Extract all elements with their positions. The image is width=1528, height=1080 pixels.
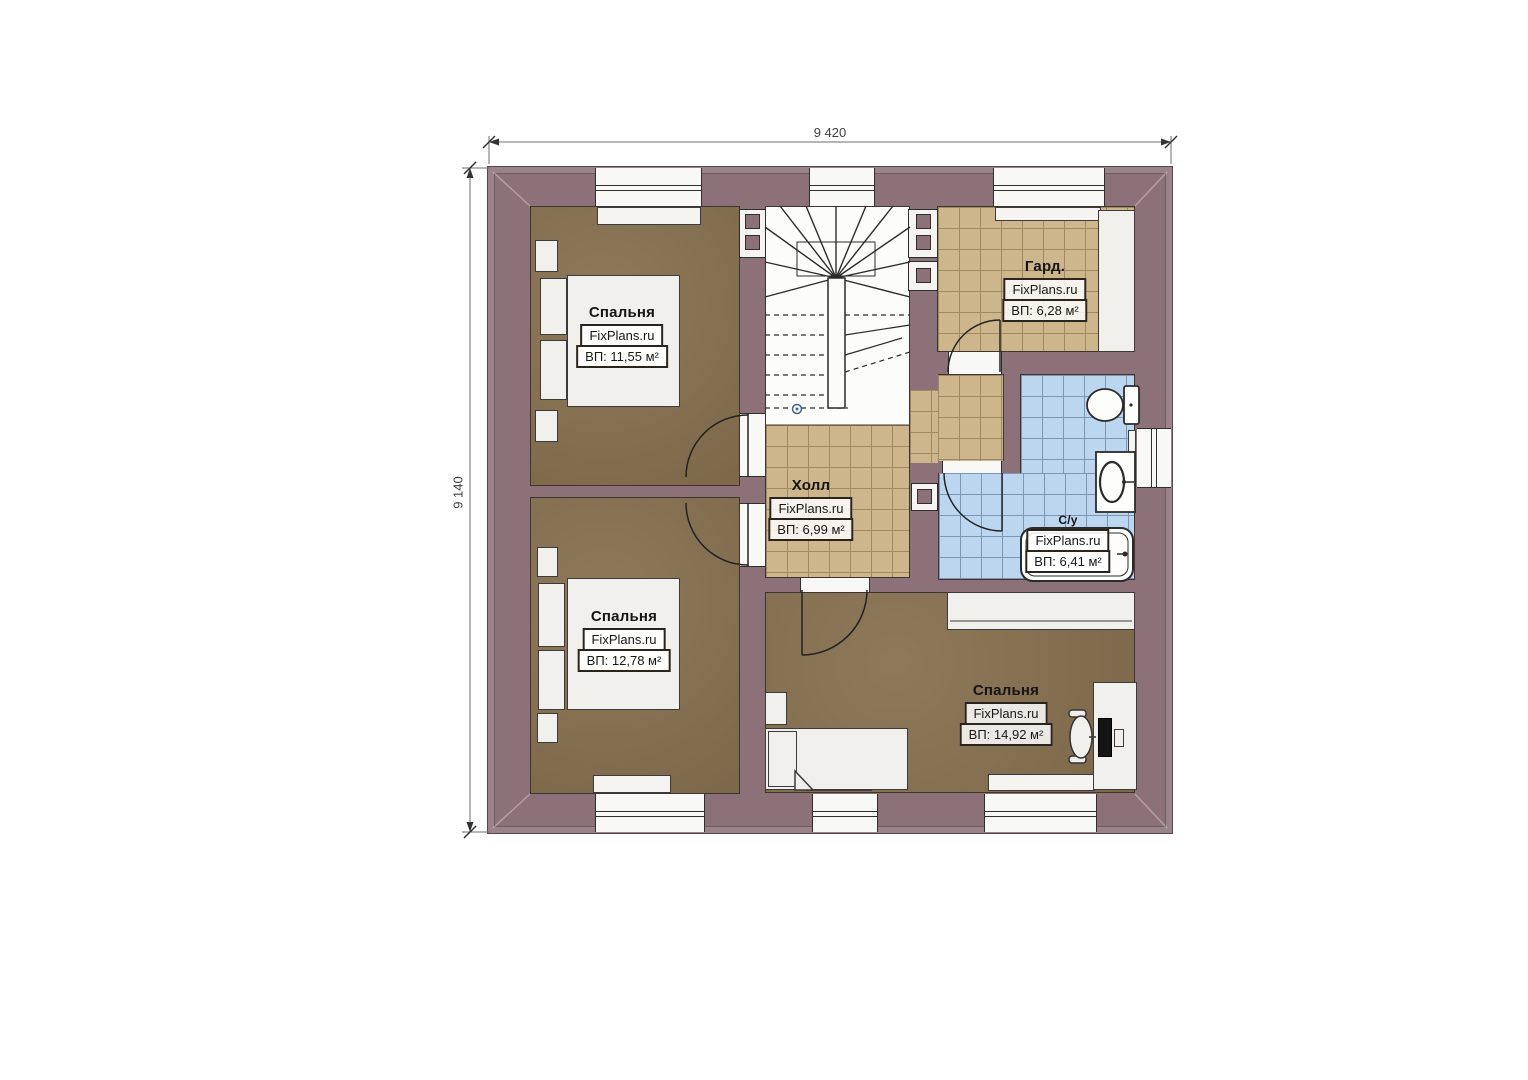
door-opening-bedroom-top-left xyxy=(740,413,765,477)
room-label-bedroom-bottom-left: Спальня FixPlans.ru ВП: 12,78 м² xyxy=(578,608,671,672)
dimension-height-label: 9 140 xyxy=(451,458,466,528)
window-top-left xyxy=(595,168,702,206)
hall-pillar-post xyxy=(911,483,938,511)
radiator-bedroom-bottom-right-2 xyxy=(988,774,1095,791)
closet xyxy=(1098,210,1135,352)
room-area-label: ВП: 12,78 м² xyxy=(578,649,671,672)
radiator-bedroom-top-left xyxy=(597,207,701,225)
radiator-wardrobe xyxy=(995,207,1101,221)
watermark-badge: FixPlans.ru xyxy=(769,497,852,520)
radiator-bedroom-bottom-left xyxy=(593,775,671,793)
wardrobe-shelf xyxy=(947,592,1135,630)
floor-plan-page: 9 420 9 140 Спальня FixPlans.ru ВП: 11,5… xyxy=(0,0,1528,1080)
room-name: Спальня xyxy=(589,304,655,321)
keyboard xyxy=(1114,729,1124,747)
nightstand xyxy=(765,692,787,725)
room-label-wardrobe: Гард. FixPlans.ru ВП: 6,28 м² xyxy=(1002,258,1087,322)
hall-passage-gap-floor xyxy=(910,390,938,463)
watermark-badge: FixPlans.ru xyxy=(580,324,663,347)
watermark-badge: FixPlans.ru xyxy=(964,702,1047,725)
pillow xyxy=(768,731,797,787)
room-label-bathroom: С/у FixPlans.ru ВП: 6,41 м² xyxy=(1025,513,1110,573)
door-opening-wardrobe xyxy=(948,352,1002,374)
room-area-label: ВП: 14,92 м² xyxy=(960,723,1053,746)
room-label-bedroom-bottom-right: Спальня FixPlans.ru ВП: 14,92 м² xyxy=(960,682,1053,746)
pillow xyxy=(540,340,567,400)
room-name: С/у xyxy=(1058,513,1077,527)
pillow xyxy=(540,278,567,335)
stair-post-right xyxy=(908,209,938,258)
room-area-label: ВП: 6,41 м² xyxy=(1025,550,1110,573)
pillow xyxy=(538,583,565,647)
room-bathroom-floor-upper xyxy=(1020,374,1135,473)
sill-bathroom-window xyxy=(1128,430,1136,486)
nightstand xyxy=(537,547,558,577)
stairwell-floor xyxy=(765,206,910,425)
window-top-right xyxy=(993,168,1105,206)
dimension-width-label: 9 420 xyxy=(790,125,870,140)
window-bottom-middle xyxy=(812,794,878,832)
hall-passage-floor xyxy=(938,374,1004,461)
window-right-bathroom xyxy=(1137,428,1171,488)
room-area-label: ВП: 11,55 м² xyxy=(576,345,668,368)
room-label-bedroom-top-left: Спальня FixPlans.ru ВП: 11,55 м² xyxy=(576,304,668,368)
door-opening-bedroom-bottom-right xyxy=(800,578,870,592)
stair-post-left xyxy=(739,209,766,258)
monitor xyxy=(1098,718,1112,757)
window-bottom-right xyxy=(984,794,1097,832)
pillow xyxy=(538,650,565,710)
window-top-middle xyxy=(809,168,875,206)
room-name: Спальня xyxy=(973,682,1039,699)
door-opening-bedroom-bottom-left xyxy=(740,503,765,567)
nightstand xyxy=(535,240,558,272)
watermark-badge: FixPlans.ru xyxy=(1026,529,1109,552)
watermark-badge: FixPlans.ru xyxy=(582,628,665,651)
room-name: Холл xyxy=(792,477,830,494)
window-bottom-left xyxy=(595,794,705,832)
nightstand xyxy=(537,713,558,743)
room-name: Спальня xyxy=(591,608,657,625)
room-area-label: ВП: 6,99 м² xyxy=(768,518,853,541)
watermark-badge: FixPlans.ru xyxy=(1003,278,1086,301)
door-opening-bathroom xyxy=(942,461,1002,473)
stair-post-right-lower xyxy=(908,261,938,291)
room-label-hall: Холл FixPlans.ru ВП: 6,99 м² xyxy=(768,477,853,541)
room-area-label: ВП: 6,28 м² xyxy=(1002,299,1087,322)
nightstand xyxy=(535,410,558,442)
room-name: Гард. xyxy=(1025,258,1065,275)
